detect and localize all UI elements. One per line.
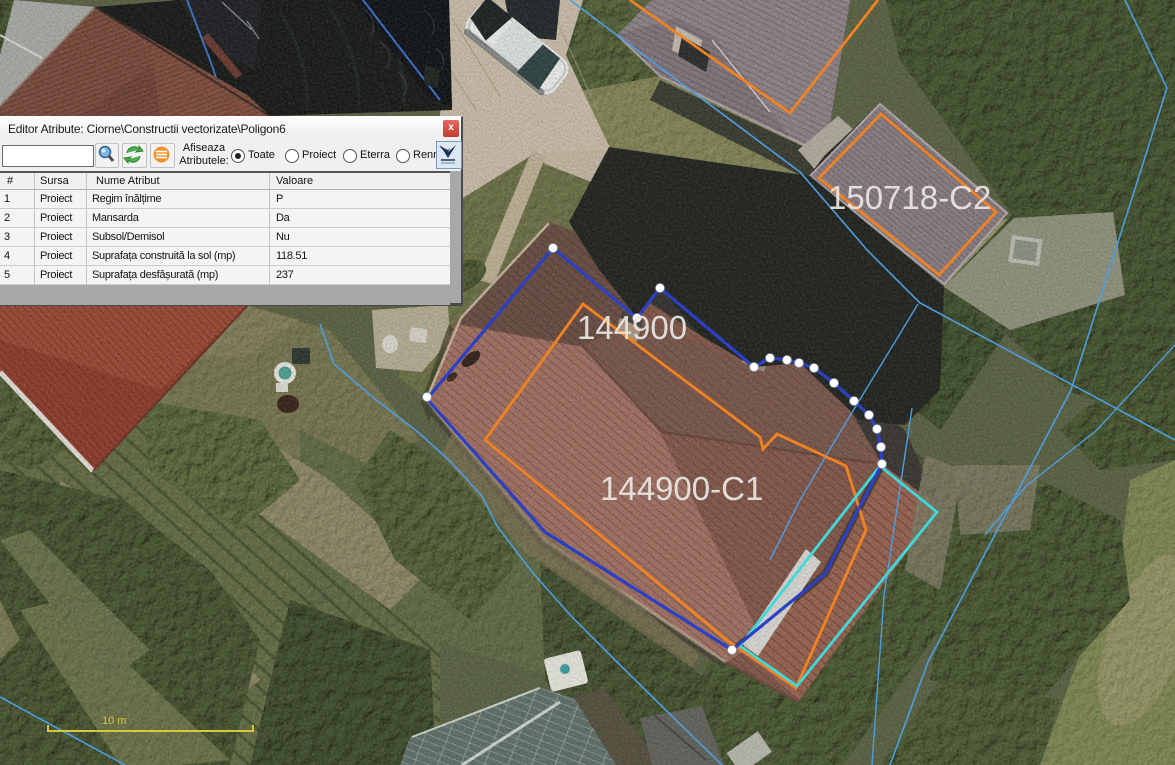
svg-text:150718-C2: 150718-C2 (828, 179, 991, 216)
svg-text:10 m: 10 m (102, 715, 126, 727)
svg-text:144900-C1: 144900-C1 (600, 470, 763, 507)
svg-text:144900: 144900 (577, 309, 687, 346)
